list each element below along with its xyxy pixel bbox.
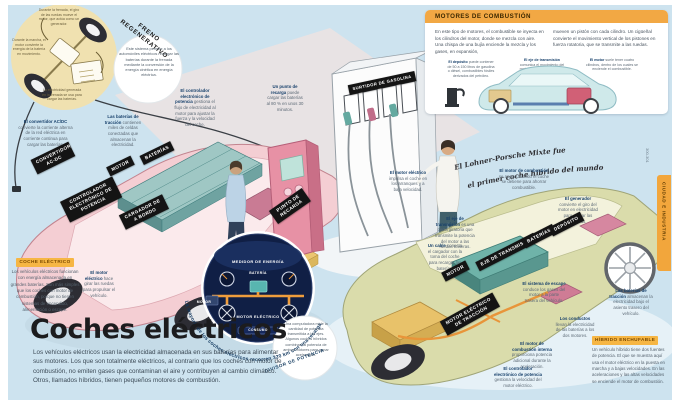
battery-chip [250, 281, 267, 292]
electric-info-title: COCHE ELÉCTRICO [16, 258, 73, 267]
regen-note-top: Durante la frenada, el giro de las rueda… [38, 8, 80, 26]
combustion-col1: En este tipo de motores, el combustible … [435, 29, 545, 55]
dashboard-consumption-label: CONSUMO [240, 328, 276, 332]
annotation-electric-motor: El motor eléctrico hace girar las ruedas… [82, 270, 116, 298]
regen-note-bottom: La electricidad generada en la frenada s… [42, 88, 82, 102]
page-frame-left [0, 0, 8, 406]
annotation-power-controller: El controlador electrónico de potencia g… [172, 88, 218, 128]
annotation-traction-batteries: Las baterías de tracción contienen miles… [103, 114, 143, 148]
dashboard-electric-motor-label: MOTOR ELÉCTRICO [226, 315, 290, 319]
annotation-conduits: Los conductos llevan la electricidad de … [555, 316, 595, 339]
annotation-hybrid-engine-off: El motor de combustión se apaga cuando e… [498, 168, 550, 191]
hybrid-info-text: Un vehículo híbrido tiene dos fuentes de… [592, 347, 666, 385]
page-frame-top [0, 0, 679, 5]
annotation-hybrid-controller: El controlador electrónico de potencia g… [494, 366, 542, 389]
annotation-charging-point: Un punto de recarga puede cargar las bat… [266, 84, 304, 112]
page-frame-bottom [0, 400, 679, 406]
post-screen [280, 155, 304, 181]
page-frame-right [672, 0, 679, 406]
dashboard-battery-label: BATERÍA [233, 271, 283, 275]
book-page: La mayoría de los coches eléctricos reco… [0, 0, 679, 406]
section-tab-label: CIUDAD E INDUSTRIA [662, 182, 667, 241]
regen-note-left: Durante la marcha, el motor convierte la… [12, 38, 46, 56]
combustion-box-title: MOTORES DE COMBUSTIÓN [425, 10, 668, 23]
section-tab: CIUDAD E INDUSTRIA [657, 175, 671, 271]
annotation-hybrid-batteries: Las baterías de tracción almacenan la el… [608, 288, 654, 316]
regen-battery-box [71, 60, 103, 84]
combustion-engines-box: MOTORES DE COMBUSTIÓN En este tipo de mo… [425, 10, 668, 114]
dashboard-title: MEDIDOR DE ENERGÍA [219, 259, 297, 264]
fuel-pump-icon [445, 88, 464, 107]
combustion-car-illustration [439, 62, 654, 114]
combustion-col2: mueven un pistón con cada cilindro. Un c… [553, 29, 659, 49]
annotation-hybrid-emotor: El motor eléctrico impulsa el coche en l… [388, 170, 428, 193]
electric-info-text: Los vehículos eléctricos funcionan con e… [10, 269, 80, 314]
dashboard-motor-label: MOTOR [192, 300, 216, 304]
page-numbers: 300-301 [645, 148, 650, 163]
hybrid-info-title: HÍBRIDO ENCHUFABLE [592, 336, 658, 345]
annotation-exhaust: El sistema de escape conduce los gases d… [522, 281, 566, 304]
hybrid-info-box: HÍBRIDO ENCHUFABLE Un vehículo híbrido t… [592, 336, 666, 385]
page-canvas: La mayoría de los coches eléctricos reco… [0, 0, 679, 406]
electric-car-info-box: COCHE ELÉCTRICO Los vehículos eléctricos… [10, 258, 80, 313]
regen-description: Este sistema permite a los automóviles e… [118, 46, 180, 78]
page-intro: Los vehículos eléctricos usan la electri… [33, 348, 289, 386]
